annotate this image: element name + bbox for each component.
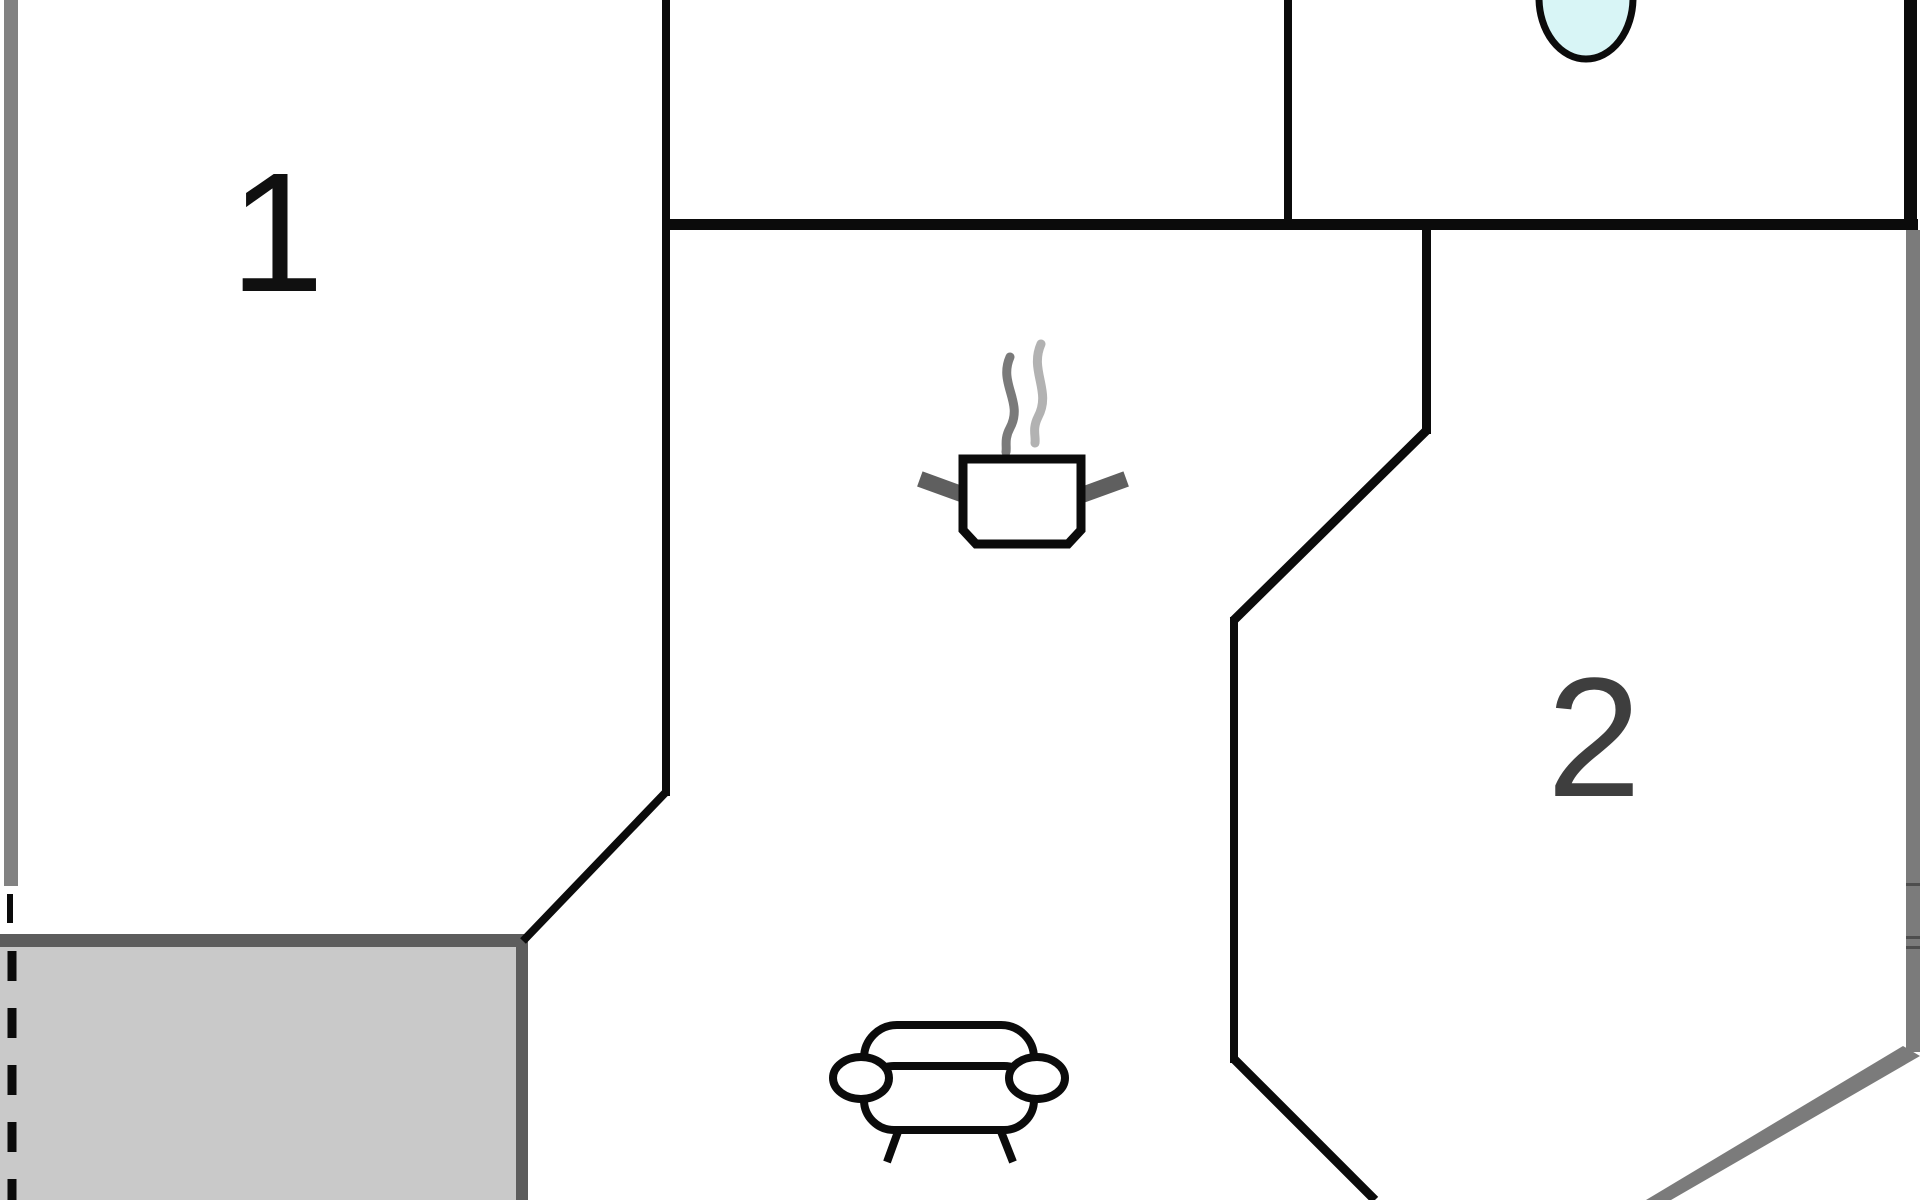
room2-lower-diagonal-wall — [1234, 1059, 1375, 1200]
sofa-icon — [833, 1025, 1065, 1162]
right-exterior-diagonal-wall — [1646, 1046, 1920, 1200]
sofa-armrest-right — [1009, 1057, 1065, 1099]
room2-left-wall-upper — [1422, 226, 1431, 434]
steam-wisp-left — [1006, 357, 1014, 452]
room1-corner-diagonal-wall — [523, 792, 666, 941]
room-1-label: 1 — [180, 148, 374, 318]
terrace-floor — [0, 947, 516, 1200]
room2-upper-diagonal-wall — [1233, 430, 1427, 621]
right-wall-joint-mark — [1906, 883, 1920, 886]
room1-right-wall — [662, 0, 670, 796]
sofa-armrest-left — [833, 1057, 889, 1099]
room-2-label: 2 — [1497, 653, 1691, 823]
floor-plan: 1 2 — [0, 0, 1920, 1200]
pot-handle-right — [1079, 471, 1129, 502]
left-exterior-wall — [4, 0, 18, 886]
right-wall-joint-mark — [1906, 936, 1920, 939]
stove-pot-icon — [917, 344, 1129, 544]
pot-body — [963, 459, 1081, 544]
room2-left-wall-lower — [1230, 617, 1238, 1063]
bathroom-right-wall — [1904, 0, 1917, 230]
steam-wisp-right — [1035, 344, 1043, 443]
terrace-right-border — [516, 934, 528, 1200]
hall-bathroom-divider-wall — [1284, 0, 1292, 226]
left-wall-opening-tick — [7, 894, 13, 923]
right-exterior-wall — [1906, 230, 1920, 1052]
washbasin-icon — [1539, 0, 1633, 59]
terrace-top-border — [0, 934, 528, 947]
right-wall-joint-mark — [1906, 946, 1920, 949]
